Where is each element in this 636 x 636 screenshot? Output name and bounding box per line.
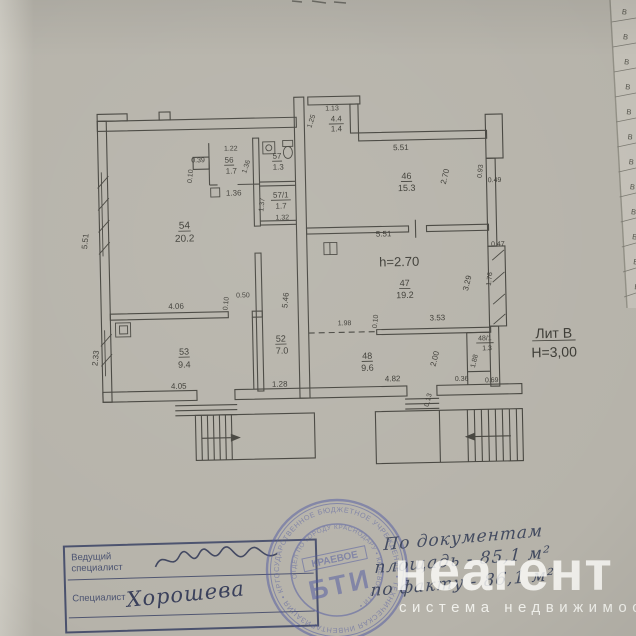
dim-label: 1.4 — [331, 124, 343, 133]
dim-label: 2.70 — [439, 167, 452, 185]
dim-label: 2.00 — [429, 350, 442, 368]
dim-label: 1.3 — [273, 163, 285, 172]
dim-label: 47 — [400, 278, 410, 288]
dim-label: Лит В — [535, 325, 572, 342]
dim-label: Н=3,00 — [531, 343, 577, 360]
top-edge-text-fragment — [292, 1, 346, 3]
dim-label: 0.36 — [455, 376, 469, 383]
dim-label: 1.13 — [325, 105, 339, 112]
door-symbol — [211, 188, 220, 197]
dim-label: 53 — [179, 347, 189, 357]
dim-label: 1.32 — [275, 214, 289, 221]
specialist-label: Специалист — [72, 592, 126, 604]
dim-label: 57/1 — [273, 190, 289, 199]
staircases — [175, 397, 523, 468]
dim-label: 4.05 — [171, 382, 187, 391]
dim-label: 1.76 — [486, 272, 494, 286]
stove-icon — [115, 323, 130, 337]
underlying-sheet-edge: ВВВВВВВВВВВВ — [610, 0, 636, 308]
dim-label: 0.13 — [424, 393, 434, 408]
dim-label: 1.22 — [224, 145, 238, 152]
dim-label: 1.25 — [306, 114, 317, 129]
dim-label: 1.7 — [275, 201, 287, 210]
dim-label: 4.82 — [385, 374, 401, 383]
dim-label: 0.93 — [477, 164, 485, 178]
dim-label: 54 — [179, 220, 191, 231]
dim-label: 5.51 — [376, 229, 392, 238]
dim-label: 0.10 — [372, 314, 380, 328]
washbasin-icon — [266, 145, 272, 151]
dim-label: 1.36 — [226, 188, 242, 197]
dim-label: 1.88 — [470, 354, 480, 369]
window-hatches — [97, 164, 506, 376]
outer-walls — [97, 93, 522, 403]
dim-label: 4.06 — [168, 302, 184, 311]
dim-label: 48/1 — [478, 335, 492, 342]
dim-label: 46 — [401, 171, 411, 181]
dim-label: 3.29 — [461, 274, 474, 292]
dim-label: 4.4 — [331, 114, 343, 123]
dim-label: 0.10 — [187, 169, 195, 183]
specialist-signature-name: Хорошева — [125, 576, 246, 611]
toilet-icon — [283, 146, 292, 158]
dim-label: 1.3 — [482, 345, 492, 352]
dim-label: 57 — [272, 152, 282, 161]
dim-label: 56 — [225, 156, 235, 165]
dim-label: 7.0 — [276, 345, 289, 355]
watermark-tagline: система недвижимости — [399, 599, 636, 616]
dim-label: 19.2 — [396, 290, 414, 300]
dim-label: 0.10 — [222, 296, 230, 310]
dim-label: 1.7 — [226, 166, 238, 175]
dim-label: 20.2 — [175, 233, 195, 244]
dim-label: 1.36 — [241, 159, 252, 174]
dim-label: 1.28 — [272, 379, 288, 388]
dim-label: 52 — [276, 334, 286, 344]
dim-label: 0.69 — [485, 377, 499, 384]
watermark-brand: неагент — [394, 543, 613, 599]
dim-label: 0.49 — [488, 177, 502, 184]
dim-label: 48 — [362, 351, 372, 361]
dim-label: 5.46 — [280, 291, 291, 308]
dim-label: 5.51 — [80, 233, 91, 250]
dim-label: 9.6 — [361, 363, 374, 373]
sheet-cell-letter: В — [630, 207, 636, 217]
dim-label: 5.51 — [393, 143, 409, 152]
dim-label: 9.4 — [178, 360, 191, 370]
dim-label: 3.53 — [430, 313, 446, 322]
stove-icon — [120, 326, 128, 334]
dim-label: 1.98 — [338, 320, 352, 327]
dim-label: 0.50 — [236, 292, 250, 299]
lead-specialist-label: Ведущий специалист — [71, 551, 134, 575]
dim-label: 15.3 — [398, 183, 416, 193]
sheet-cell-letter: В — [632, 232, 636, 242]
dim-label: 0.47 — [491, 241, 505, 248]
dim-label: h=2.70 — [379, 254, 419, 270]
dim-label: 1.37 — [258, 198, 266, 212]
toilet-icon — [283, 140, 293, 146]
dim-label: 2.33 — [90, 349, 101, 366]
dim-label: 0.39 — [191, 157, 205, 164]
photographed-bti-floor-plan-document: ВВВВВВВВВВВВ — [0, 0, 636, 636]
